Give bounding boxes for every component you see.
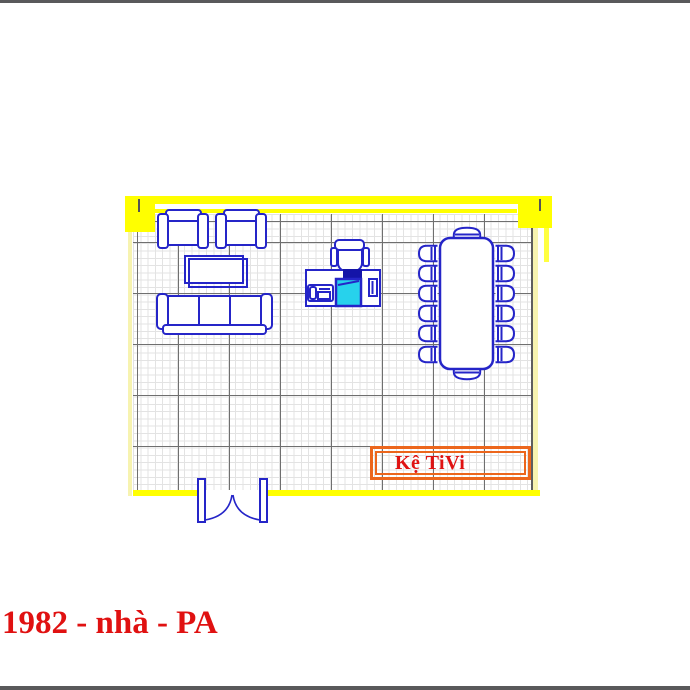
left-column-mark [138,199,140,212]
right-column [518,196,552,228]
keyboard [344,270,361,279]
sofa[interactable] [157,294,272,334]
side-chair [419,326,438,341]
end-chair [454,370,480,380]
side-chair [419,246,438,261]
tv-shelf-label: Kệ TiVi [395,452,465,475]
top-wall-band [125,196,550,204]
side-chair [419,347,438,362]
conference-table [440,238,493,369]
side-chair [496,266,515,281]
left-wall-strip [128,232,132,496]
tv-shelf-inner-border: Kệ TiVi [375,451,526,475]
end-chair [454,228,480,238]
desk-tray [369,279,377,296]
bottom-wall-left [133,490,200,496]
side-chair [419,306,438,321]
right-column-mark [539,199,541,211]
side-chair [496,286,515,301]
floor-plan-canvas[interactable] [0,0,690,690]
screenshot-stage: Kệ TiVi 1982 - nhà - PA [0,0,690,690]
bottom-wall-right [265,490,540,496]
side-chair [496,306,515,321]
tv-shelf-box[interactable]: Kệ TiVi [370,446,531,480]
desk[interactable] [306,270,380,306]
right-wall-strip [533,214,538,496]
side-chair [419,266,438,281]
right-wall-stub [544,228,549,262]
side-chair [496,326,515,341]
side-chair [496,246,515,261]
armchair-1[interactable] [158,210,208,248]
desk-phone [308,285,333,301]
side-chair [419,286,438,301]
office-chair[interactable] [331,240,369,271]
armchair-2[interactable] [216,210,266,248]
side-chair [496,347,515,362]
drawing-caption: 1982 - nhà - PA [2,605,218,642]
top-wall-inner-line [155,209,517,213]
conference-table-set[interactable] [419,228,514,379]
coffee-table[interactable] [185,256,247,287]
double-door[interactable] [198,479,267,522]
